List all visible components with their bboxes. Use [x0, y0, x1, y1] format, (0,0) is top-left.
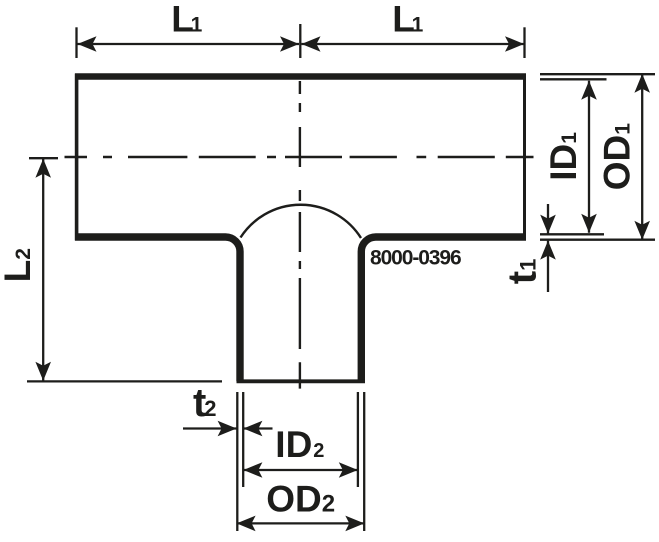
svg-text:OD1: OD1: [597, 123, 638, 191]
svg-text:L1: L1: [171, 0, 202, 40]
svg-text:L2: L2: [0, 248, 38, 282]
svg-text:L1: L1: [392, 0, 423, 40]
svg-text:ID2: ID2: [275, 424, 324, 465]
svg-text:ID1: ID1: [543, 132, 584, 181]
svg-text:OD2: OD2: [266, 479, 335, 520]
svg-text:t2: t2: [193, 381, 217, 425]
svg-text:8000-0396: 8000-0396: [370, 246, 461, 269]
svg-text:t1: t1: [501, 259, 545, 285]
